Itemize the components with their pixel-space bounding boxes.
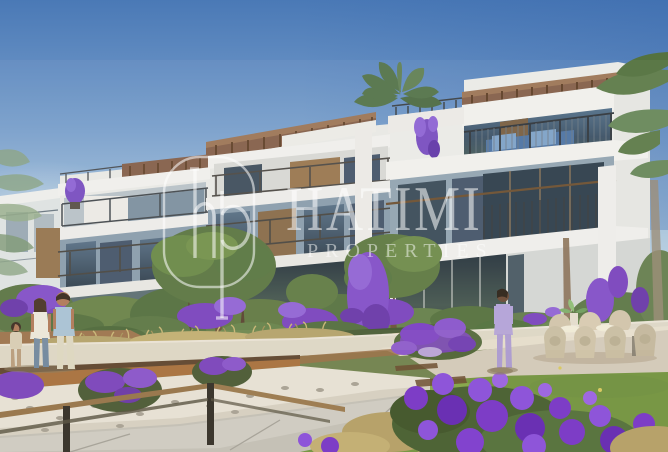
- svg-text:HATIMI: HATIMI: [286, 175, 482, 244]
- svg-text:PROPERTIES: PROPERTIES: [307, 240, 494, 262]
